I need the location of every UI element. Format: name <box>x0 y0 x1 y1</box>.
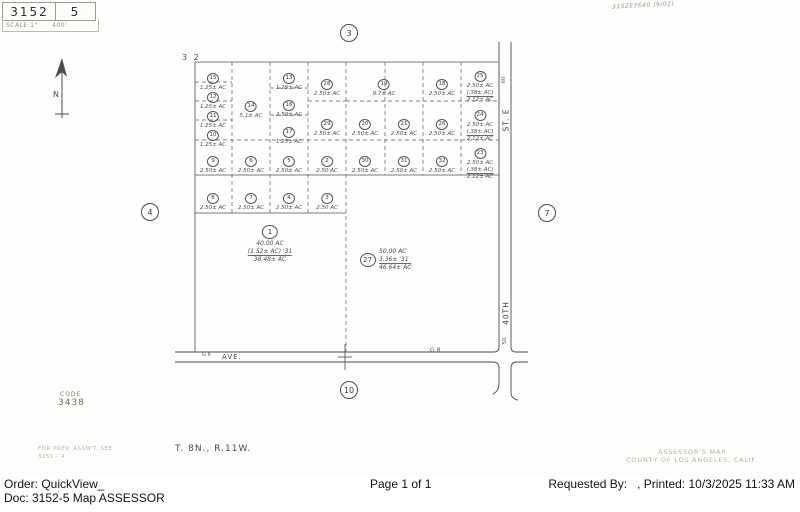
parcel-17: 171.25± AC <box>276 120 302 146</box>
parcel-24: 242.50± AC(.38± AC)2.12± AC <box>467 103 494 143</box>
map-linework <box>0 0 800 475</box>
parcel-9: 92.50± AC <box>200 149 226 175</box>
parcel-acreage: 50.00 AC <box>379 248 411 256</box>
section-corner-marker <box>338 344 352 370</box>
parcel-1: 140.00 AC(1.52± AC) '3138.48± AC <box>248 221 292 264</box>
parcel-30: 302.50± AC <box>352 149 378 175</box>
parcel-number: 13 <box>283 73 295 84</box>
parcel-acreage: 3.36± '31 <box>379 256 411 264</box>
parcel-19: 199.7± AC <box>373 72 396 98</box>
parcel-number: 1 <box>262 225 278 239</box>
avenue-g8-small-left: G 8 <box>202 352 211 358</box>
map-reference-circle-3: 3 <box>340 24 358 42</box>
parcel-acreage: 46.64± AC <box>379 263 411 272</box>
parcel-number: 29 <box>321 119 333 130</box>
parcel-number: 30 <box>359 156 371 167</box>
parcel-acreage: 2.50± AC <box>276 112 302 119</box>
parcel-number: 14 <box>245 101 257 112</box>
parcel-number: 20 <box>359 119 371 130</box>
parcel-5: 52.50± AC <box>276 149 302 175</box>
parcel-32: 322.50± AC <box>429 149 455 175</box>
parcel-number: 3 <box>321 193 333 204</box>
parcel-number: 23 <box>474 148 486 159</box>
parcel-acreage: (1.52± AC) '31 <box>248 248 292 256</box>
map-reference-circle-10: 10 <box>340 381 358 399</box>
map-reference-circle-4: 4 <box>141 203 159 221</box>
county-label: COUNTY OF LOS ANGELES, CALIF. <box>592 456 792 464</box>
parcel-acreage: 2.50± AC <box>200 168 226 175</box>
parcel-acreage: 2.50± AC <box>391 131 417 138</box>
parcel-number: 9 <box>207 156 219 167</box>
township-range-label: T. 8N., R.11W. <box>175 444 251 454</box>
parcel-16: 162.50± AC <box>276 93 302 119</box>
parcel-4: 42.50± AC <box>276 186 302 212</box>
parcel-number: 28 <box>321 79 333 90</box>
parcel-acreage: 2.50± AC <box>238 205 264 212</box>
parcel-number: 12 <box>207 92 219 103</box>
footer-page-indicator: Page 1 of 1 <box>370 477 431 491</box>
footer-requested-printed: Requested By: , Printed: 10/3/2025 11:33… <box>548 477 795 491</box>
parcel-number: 18 <box>436 79 448 90</box>
north-label: N <box>53 90 59 99</box>
parcel-acreage: (.38± AC) <box>467 129 494 136</box>
parcel-acreage: 40.00 AC <box>248 240 292 248</box>
parcel-acreage: 2.50± AC <box>429 131 455 138</box>
parcel-acreage: 2.50± AC <box>314 131 340 138</box>
parcel-number: 21 <box>398 119 410 130</box>
parcel-13: 131.25± AC <box>276 66 302 92</box>
parcel-acreage: 1.25± AC <box>200 142 226 149</box>
parcel-acreage: 2.50± AC <box>467 122 494 129</box>
north-arrow-icon <box>55 58 69 118</box>
parcel-acreage: 2.50± AC <box>238 168 264 175</box>
code-label: CODE <box>60 391 81 398</box>
parcel-acreage: 2.50± AC <box>314 91 340 98</box>
parcel-number: 24 <box>474 110 486 121</box>
map-page-number-text: 5 <box>71 5 81 19</box>
print-footer: Order: QuickView_ Doc: 3152-5 Map ASSESS… <box>0 475 800 512</box>
parcel-7: 72.50± AC <box>238 186 264 212</box>
assessor-map-page: 3152 5 SCALE 1" 400' 3152E7640 (9/01) N … <box>0 0 800 512</box>
parcel-acreage: 2.50± AC <box>467 160 494 167</box>
road-width-50: 50 <box>502 338 508 344</box>
footer-order: Order: QuickView_ <box>4 477 104 491</box>
street-label-st-e: ST. E <box>502 109 511 132</box>
parcel-acreage: (.38± AC) <box>467 167 494 174</box>
parcel-number: 7 <box>245 193 257 204</box>
assessors-map-label: ASSESSOR'S MAP <box>592 448 792 456</box>
map-book-number-text: 3152 <box>10 5 49 19</box>
parcel-number: 19 <box>378 79 390 90</box>
parcel-acreage: 5.1± AC <box>240 113 263 120</box>
prev-assessment-note-line1: FOR PREV. ASSM'T. SEE <box>38 446 112 452</box>
parcel-acreage: 2.50± AC <box>467 83 494 90</box>
parcel-29: 292.50± AC <box>314 112 340 138</box>
parcel-acreage: 2.50± AC <box>429 91 455 98</box>
parcel-number: 27 <box>360 253 376 267</box>
parcel-28: 282.50± AC <box>314 72 340 98</box>
parcel-number: 6 <box>245 156 257 167</box>
parcel-acreage: 2.50± AC <box>200 205 226 212</box>
parcel-acreage: 2.50± AC <box>352 168 378 175</box>
street-label-40th: 40TH <box>502 301 511 325</box>
parcel-20: 202.50± AC <box>352 112 378 138</box>
parcel-acreage: 2.50± AC <box>276 205 302 212</box>
prev-assessment-note-line2: 3151 - 4 <box>38 454 65 460</box>
parcel-acreage: 2.50± AC <box>276 168 302 175</box>
road-width-60: 60 <box>501 77 507 83</box>
parcel-number: 32 <box>436 156 448 167</box>
parcel-number: 5 <box>283 156 295 167</box>
code-value: 3438 <box>58 398 85 408</box>
map-reference-circle-7: 7 <box>538 204 556 222</box>
parcel-26: 262.50± AC <box>429 112 455 138</box>
parcel-number: 16 <box>283 100 295 111</box>
avenue-label: AVE. <box>222 353 242 361</box>
parcel-3: 32.50 AC <box>316 186 338 212</box>
scanned-map-area: 3152 5 SCALE 1" 400' 3152E7640 (9/01) N … <box>0 0 800 475</box>
parcel-acreage: 2.50 AC <box>316 168 338 175</box>
parcel-number: 17 <box>283 127 295 138</box>
parcel-acreage: 1.25± AC <box>276 85 302 92</box>
parcel-acreage: 2.50± AC <box>391 168 417 175</box>
avenue-g8-small-right: G 8 <box>430 347 440 354</box>
parcel-31: 312.50± AC <box>391 149 417 175</box>
parcel-number: 8 <box>207 193 219 204</box>
parcel-acreage: 9.7± AC <box>373 91 396 98</box>
parcel-acreage: 2.50 AC <box>316 205 338 212</box>
parcel-number: 15 <box>207 73 219 84</box>
parcel-8: 82.50± AC <box>200 186 226 212</box>
parcel-number: 10 <box>207 130 219 141</box>
parcel-acreage: 1.25± AC <box>276 139 302 146</box>
parcel-18: 182.50± AC <box>429 72 455 98</box>
parcel-number: 2 <box>321 156 333 167</box>
parcel-number: 11 <box>207 111 219 122</box>
parcel-acreage: (.38± AC) <box>467 90 494 97</box>
parcel-number: 26 <box>436 119 448 130</box>
parcel-acreage: 2.50± AC <box>352 131 378 138</box>
parcel-acreage: 2.12± AC <box>467 173 494 181</box>
parcel-number: 31 <box>398 156 410 167</box>
parcel-6: 62.50± AC <box>238 149 264 175</box>
parcel-acreage: 38.48± AC <box>248 255 292 264</box>
parcel-27: 2750.00 AC3.36± '3146.64± AC <box>360 248 411 272</box>
parcel-number: 4 <box>283 193 295 204</box>
parcel-10: 101.25± AC <box>200 123 226 149</box>
parcel-acreage: 2.50± AC <box>429 168 455 175</box>
parcel-21: 212.50± AC <box>391 112 417 138</box>
parcel-25: 252.50± AC(.38± AC)2.12± AC <box>467 64 494 104</box>
scale-label: SCALE 1" 400' <box>2 19 99 32</box>
parcel-23: 232.50± AC(.38± AC)2.12± AC <box>467 141 494 181</box>
parcel-number: 25 <box>474 71 486 82</box>
section-numbers-label: 3 2 <box>182 53 201 62</box>
footer-doc: Doc: 3152-5 Map ASSESSOR <box>4 491 165 505</box>
parcel-14: 145.1± AC <box>240 94 263 120</box>
parcel-2: 22.50 AC <box>316 149 338 175</box>
